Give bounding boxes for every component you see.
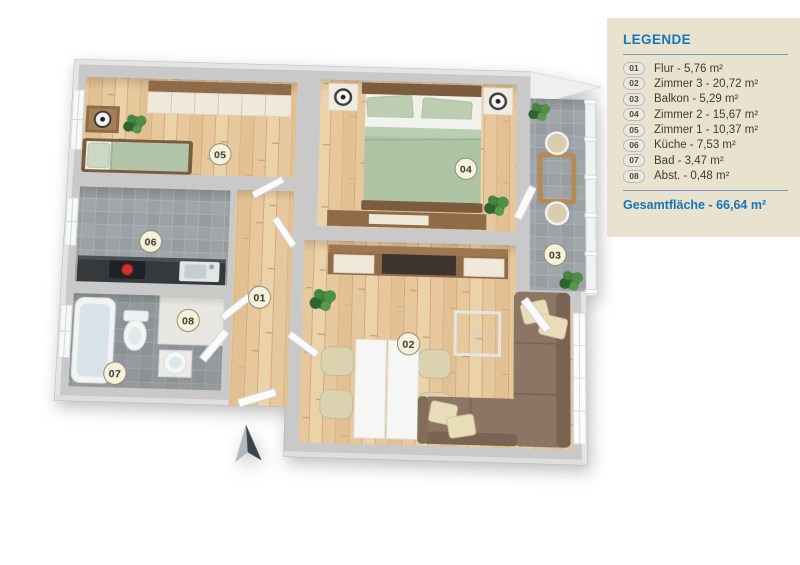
wardrobe (147, 80, 291, 116)
legend-item-number: 08 (623, 170, 645, 183)
legend-total-area: Gesamtfläche - 66,64 m² (623, 198, 788, 212)
north-arrow-icon (233, 423, 262, 462)
svg-text:06: 06 (144, 237, 157, 248)
balcony-railing (584, 100, 597, 296)
svg-text:02: 02 (402, 339, 415, 351)
legend-item-label: Zimmer 2 - 15,67 m² (654, 109, 758, 121)
svg-text:01: 01 (253, 293, 266, 305)
chair (320, 389, 353, 419)
legend-item: 03Balkon - 5,29 m² (623, 93, 788, 106)
kueche-furniture (77, 255, 226, 285)
nightstand (85, 105, 120, 133)
legend-item-label: Küche - 7,53 m² (654, 139, 736, 151)
nightstand (328, 83, 358, 110)
legend-title: LEGENDE (623, 32, 788, 47)
legend-panel: LEGENDE 01Flur - 5,76 m² 02Zimmer 3 - 20… (607, 18, 800, 237)
chair (321, 346, 354, 375)
legend-item-number: 05 (623, 124, 645, 137)
legend-item-label: Abst. - 0,48 m² (654, 170, 729, 182)
legend-item-number: 06 (623, 139, 645, 152)
legend-item-number: 02 (623, 77, 645, 90)
svg-text:05: 05 (214, 150, 227, 161)
legend-item-label: Balkon - 5,29 m² (654, 93, 738, 105)
bath-sink (158, 350, 192, 377)
tv-sideboard (328, 244, 509, 279)
legend-item: 04Zimmer 2 - 15,67 m² (623, 108, 788, 121)
dining-table (354, 339, 387, 438)
balcony-chair (546, 132, 568, 154)
legend-divider (623, 190, 788, 191)
kitchen-sink (184, 264, 207, 279)
pillow (447, 414, 477, 438)
legend-item-number: 07 (623, 154, 645, 167)
svg-text:08: 08 (182, 316, 195, 328)
bed-single (81, 138, 193, 175)
svg-text:04: 04 (460, 165, 472, 176)
legend-item-number: 03 (623, 93, 645, 106)
dining-table (387, 340, 419, 439)
stove-pot-icon (122, 264, 134, 275)
room-badge-02: 02 (397, 332, 420, 355)
room-badge-04: 04 (455, 158, 477, 180)
floorplan: 01 02 03 04 05 06 07 08 (15, 47, 610, 480)
legend-divider (623, 54, 788, 55)
room-badge-05: 05 (209, 143, 232, 165)
room-badge-06: 06 (139, 230, 162, 252)
bed-double (359, 82, 483, 213)
room-badge-03: 03 (544, 243, 566, 265)
kitchen-counter (77, 255, 226, 285)
legend-item-label: Bad - 3,47 m² (654, 155, 724, 167)
floorplan-3d-wrap: 01 02 03 04 05 06 07 08 (15, 47, 610, 480)
nightstand (483, 88, 513, 116)
legend-item: 07Bad - 3,47 m² (623, 154, 788, 167)
room-badge-08: 08 (177, 309, 200, 332)
page: { "legend": { "title": "LEGENDE", "items… (0, 0, 800, 565)
legend-item-number: 04 (623, 108, 645, 121)
legend-item-label: Flur - 5,76 m² (654, 63, 723, 75)
svg-text:03: 03 (549, 250, 561, 261)
legend-items: 01Flur - 5,76 m² 02Zimmer 3 - 20,72 m² 0… (623, 62, 788, 183)
svg-text:07: 07 (108, 369, 121, 381)
legend-item: 05Zimmer 1 - 10,37 m² (623, 124, 788, 137)
window-kueche (65, 198, 79, 246)
room-badge-01: 01 (248, 286, 271, 309)
room-badge-07: 07 (103, 362, 126, 385)
legend-item-label: Zimmer 1 - 10,37 m² (654, 124, 758, 136)
legend-item: 06Küche - 7,53 m² (623, 139, 788, 152)
legend-item: 01Flur - 5,76 m² (623, 62, 788, 75)
balcony-chair (546, 202, 568, 224)
legend-item-number: 01 (623, 62, 645, 75)
legend-item: 02Zimmer 3 - 20,72 m² (623, 77, 788, 90)
legend-item: 08Abst. - 0,48 m² (623, 170, 788, 183)
legend-item-label: Zimmer 3 - 20,72 m² (654, 78, 758, 90)
window-zimmer3 (573, 313, 586, 444)
chair (418, 349, 451, 378)
